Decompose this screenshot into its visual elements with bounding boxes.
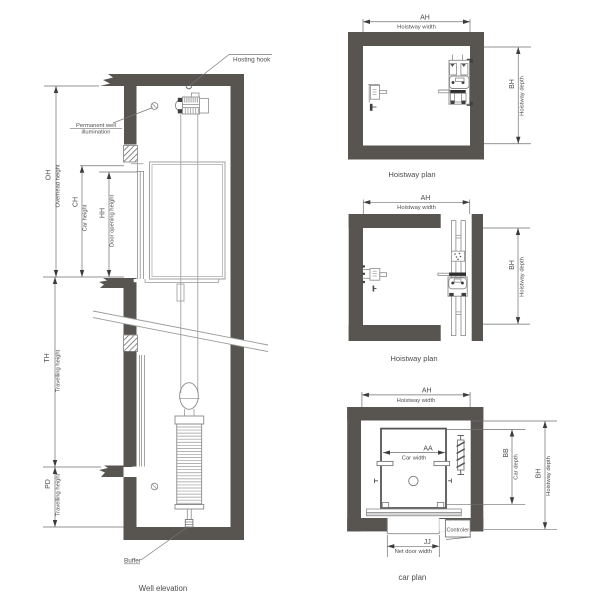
svg-text:Hoistway width: Hoistway width [397,25,436,31]
svg-text:Hoistway width: Hoistway width [397,205,436,211]
svg-text:AH: AH [420,15,430,22]
svg-text:Hoistway plan: Hoistway plan [390,354,437,363]
svg-text:Door opening height: Door opening height [110,195,116,248]
svg-text:Car depth: Car depth [514,454,520,479]
svg-text:Overhead height: Overhead height [56,164,62,207]
svg-text:Car height: Car height [83,204,89,231]
svg-text:JJ: JJ [424,539,431,546]
svg-text:Car width: Car width [402,456,426,462]
svg-text:Hosting hook: Hosting hook [233,57,271,64]
svg-text:CH: CH [73,197,80,207]
svg-text:AH: AH [422,388,432,395]
svg-text:Hoistway depth: Hoistway depth [546,456,552,496]
svg-text:Buffer: Buffer [124,558,142,565]
svg-text:AA: AA [423,445,433,452]
svg-text:Controler: Controler [446,528,469,534]
svg-text:BB: BB [503,448,510,458]
svg-text:PD: PD [45,479,52,489]
svg-text:Hoistway depth: Hoistway depth [520,257,526,297]
svg-text:car plan: car plan [399,573,427,582]
svg-text:Net door width: Net door width [395,549,432,555]
svg-text:Hoistway depth: Hoistway depth [520,76,526,116]
svg-text:illumination: illumination [82,130,111,136]
svg-text:Travelling height: Travelling height [56,349,62,392]
svg-text:AH: AH [421,195,431,202]
svg-text:Hoistway width: Hoistway width [397,398,436,404]
svg-text:BH: BH [509,260,516,270]
svg-text:Well elevation: Well elevation [139,584,187,593]
svg-text:Hoistway plan: Hoistway plan [388,170,435,179]
svg-text:BH: BH [509,79,516,89]
svg-text:Travelling height: Travelling height [56,473,62,516]
svg-text:BH: BH [536,469,543,479]
svg-text:HH: HH [100,208,107,218]
svg-text:TH: TH [44,353,51,362]
svg-text:OH: OH [46,170,53,181]
